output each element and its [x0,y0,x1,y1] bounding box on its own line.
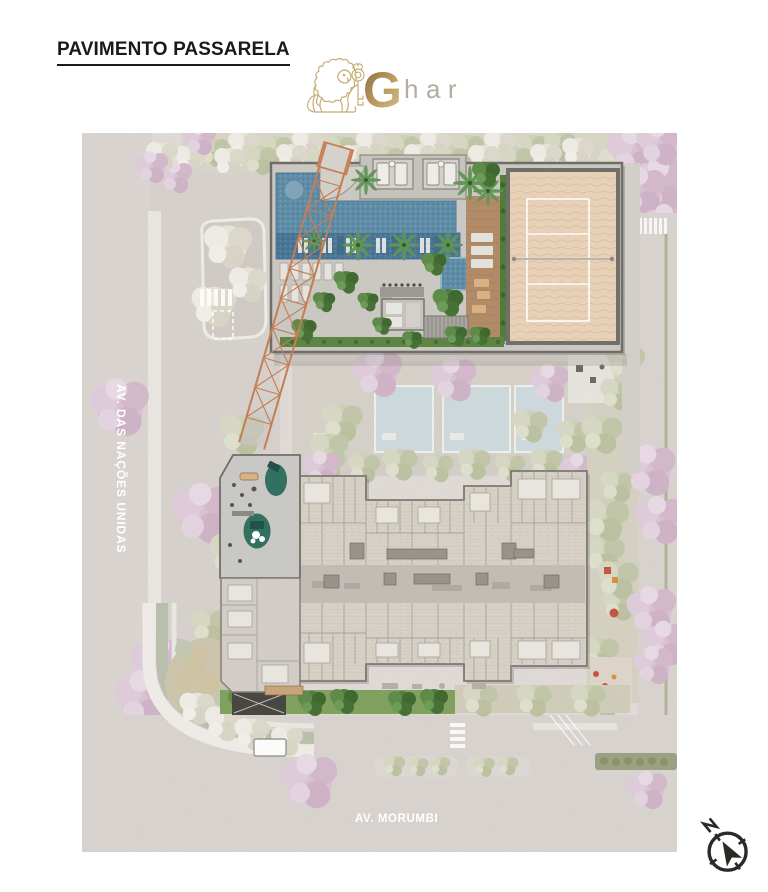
svg-text:G: G [363,62,402,118]
svg-text:AV. MORUMBI: AV. MORUMBI [355,813,438,825]
svg-text:AV. DAS NAÇÕES UNIDAS: AV. DAS NAÇÕES UNIDAS [114,384,129,554]
svg-text:har: har [404,74,464,104]
